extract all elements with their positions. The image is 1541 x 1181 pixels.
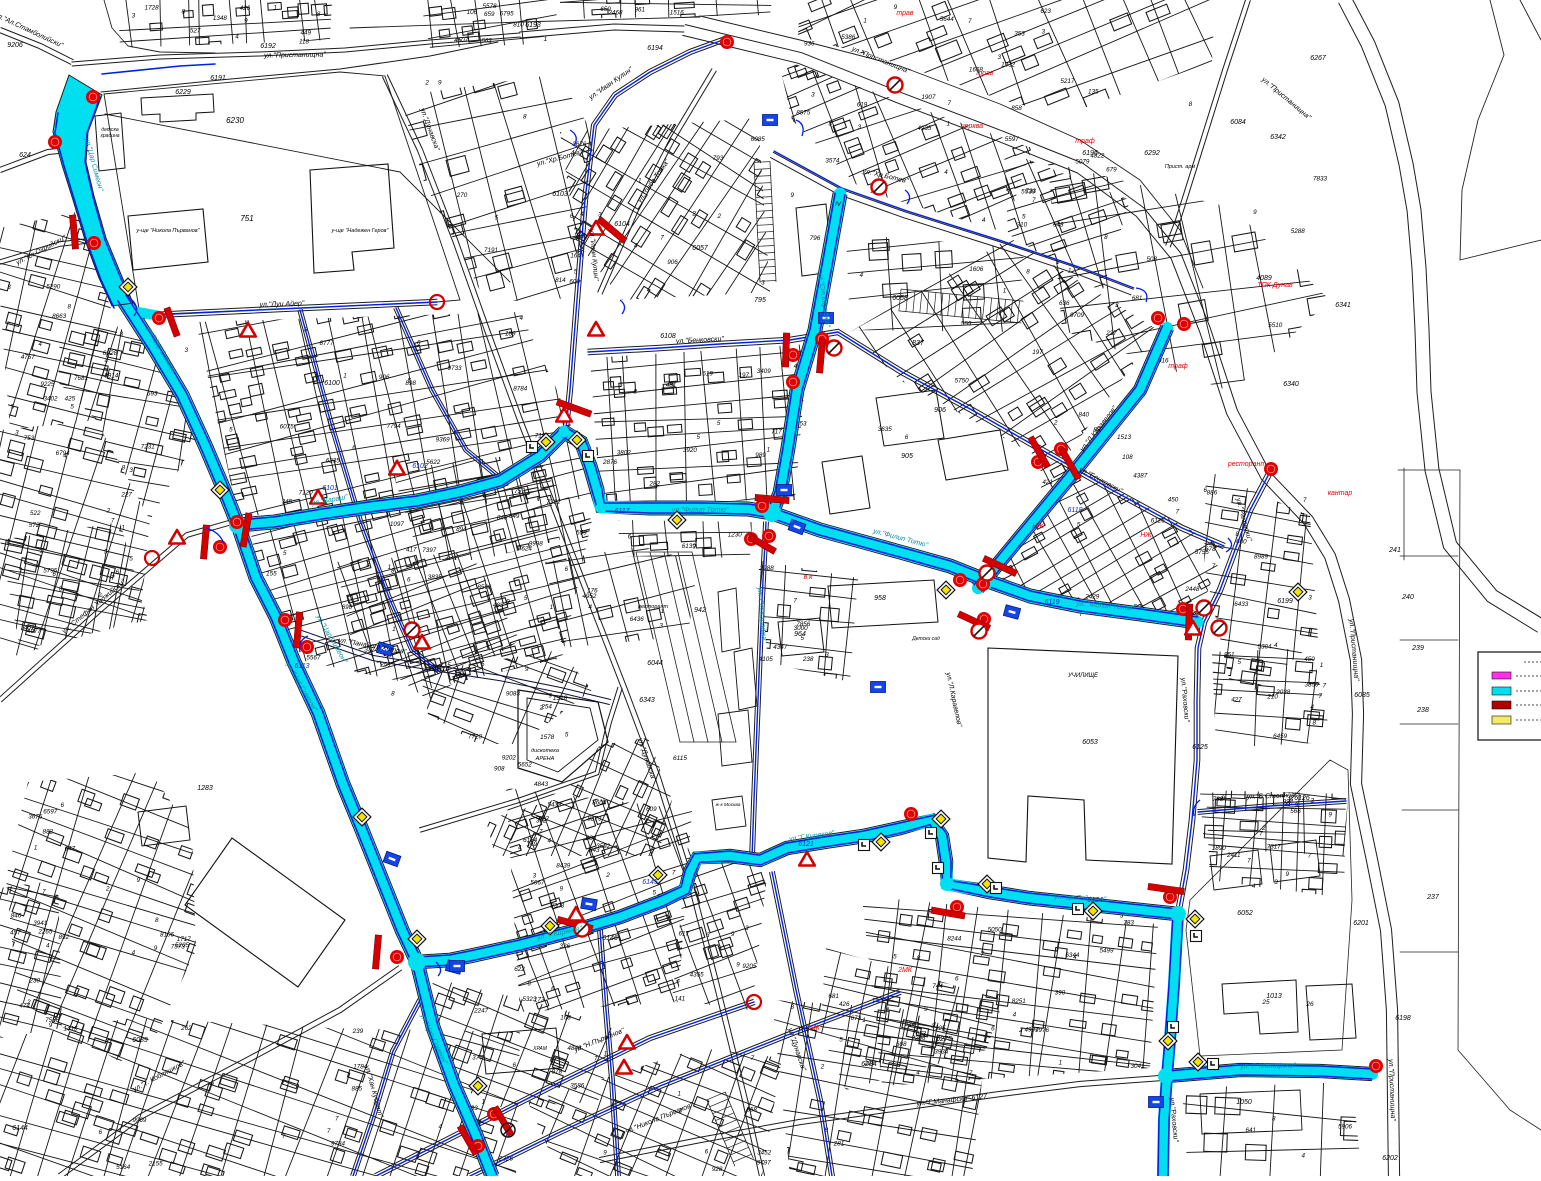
- svg-text:1: 1: [1320, 662, 1324, 669]
- svg-text:6292: 6292: [1144, 150, 1160, 157]
- svg-text:1: 1: [1003, 288, 1007, 295]
- svg-text:2: 2: [820, 1064, 825, 1071]
- svg-text:7: 7: [1323, 683, 1327, 690]
- svg-text:6101: 6101: [322, 485, 338, 492]
- svg-text:647: 647: [65, 845, 76, 852]
- svg-text:9205: 9205: [742, 963, 757, 970]
- svg-text:3: 3: [1041, 29, 1045, 36]
- svg-text:5644: 5644: [940, 16, 955, 23]
- svg-text:6: 6: [407, 577, 411, 584]
- svg-text:353: 353: [1014, 31, 1025, 38]
- svg-text:238: 238: [802, 656, 814, 663]
- svg-text:7: 7: [282, 1133, 286, 1140]
- svg-text:6: 6: [417, 340, 421, 347]
- svg-text:5: 5: [229, 426, 233, 433]
- svg-text:черква: черква: [961, 123, 983, 130]
- svg-text:7624: 7624: [518, 545, 533, 552]
- svg-text:4: 4: [1252, 883, 1256, 890]
- svg-text:6053: 6053: [1082, 739, 1098, 746]
- svg-text:6114: 6114: [434, 666, 449, 673]
- svg-text:6201: 6201: [1353, 920, 1369, 927]
- svg-text:1: 1: [121, 525, 125, 532]
- svg-text:1606: 1606: [969, 266, 984, 273]
- svg-text:6: 6: [527, 980, 531, 987]
- svg-text:189: 189: [505, 330, 516, 337]
- svg-text:УЧИЛИЩЕ: УЧИЛИЩЕ: [1067, 673, 1099, 679]
- svg-text:5667: 5667: [530, 879, 545, 886]
- svg-text:6057: 6057: [692, 245, 709, 252]
- svg-text:6044: 6044: [647, 660, 663, 667]
- svg-text:106: 106: [467, 9, 478, 16]
- svg-text:IV: IV: [835, 202, 842, 208]
- svg-text:6196: 6196: [1082, 150, 1098, 157]
- svg-text:НЖ: НЖ: [1032, 523, 1044, 530]
- svg-text:8: 8: [1272, 1116, 1276, 1123]
- svg-text:7120: 7120: [299, 489, 314, 496]
- svg-text:5578: 5578: [482, 3, 497, 10]
- svg-text:837: 837: [912, 340, 925, 347]
- svg-text:4: 4: [1013, 1011, 1017, 1018]
- svg-text:5: 5: [104, 548, 108, 555]
- svg-text:624: 624: [19, 152, 31, 159]
- svg-text:2МК: 2МК: [805, 1025, 821, 1032]
- svg-text:906: 906: [934, 407, 946, 414]
- svg-text:2876: 2876: [602, 459, 618, 466]
- svg-text:693: 693: [147, 391, 158, 398]
- svg-text:421: 421: [1042, 479, 1053, 486]
- svg-text:5: 5: [70, 403, 74, 410]
- svg-text:958: 958: [874, 595, 886, 602]
- svg-text:6194: 6194: [647, 45, 663, 52]
- svg-text:9784: 9784: [331, 1140, 346, 1147]
- svg-text:3041: 3041: [1130, 1063, 1144, 1070]
- svg-text:9: 9: [560, 886, 564, 893]
- svg-text:2: 2: [106, 508, 111, 515]
- svg-text:7: 7: [660, 234, 664, 241]
- svg-text:7: 7: [1212, 563, 1216, 570]
- svg-text:6: 6: [628, 533, 632, 540]
- svg-text:8: 8: [633, 389, 637, 396]
- svg-text:6: 6: [991, 1026, 995, 1033]
- svg-text:6191: 6191: [210, 75, 226, 82]
- svg-text:ул."Г. Манафски": ул."Г. Манафски": [1239, 1063, 1296, 1071]
- svg-text:8439: 8439: [556, 863, 571, 870]
- svg-text:681: 681: [828, 993, 839, 1000]
- svg-text:3: 3: [811, 92, 815, 99]
- svg-text:9976: 9976: [1035, 1027, 1050, 1034]
- svg-text:6795: 6795: [500, 11, 515, 18]
- svg-text:4: 4: [1302, 1153, 1306, 1160]
- svg-text:617: 617: [679, 931, 690, 938]
- svg-text:25: 25: [1261, 999, 1270, 1006]
- svg-text:2448: 2448: [1184, 586, 1200, 593]
- svg-text:7: 7: [111, 575, 115, 582]
- svg-text:1283: 1283: [197, 785, 213, 792]
- svg-text:3: 3: [997, 54, 1001, 61]
- svg-text:6235: 6235: [326, 458, 341, 465]
- svg-text:7: 7: [327, 1128, 331, 1135]
- svg-text:7720: 7720: [468, 734, 483, 741]
- svg-text:481: 481: [666, 382, 677, 389]
- svg-text:9: 9: [136, 877, 140, 884]
- svg-text:6198: 6198: [1395, 1015, 1411, 1022]
- svg-text:9: 9: [1328, 811, 1332, 818]
- svg-text:1: 1: [343, 372, 347, 379]
- svg-text:9: 9: [525, 666, 529, 673]
- svg-text:744: 744: [932, 983, 943, 990]
- svg-text:дискотека: дискотека: [531, 748, 559, 754]
- svg-text:882: 882: [43, 829, 54, 836]
- svg-text:8106: 8106: [160, 932, 175, 939]
- svg-text:7: 7: [42, 889, 46, 896]
- svg-text:141: 141: [675, 996, 686, 1003]
- svg-text:1: 1: [677, 1090, 681, 1097]
- svg-text:6039: 6039: [132, 1037, 148, 1044]
- svg-text:4: 4: [46, 943, 50, 950]
- svg-text:1513: 1513: [1117, 434, 1132, 441]
- svg-text:681: 681: [1132, 295, 1143, 302]
- svg-text:345: 345: [282, 499, 293, 506]
- svg-text:6124: 6124: [1087, 897, 1103, 904]
- svg-text:788: 788: [1213, 796, 1224, 803]
- svg-text:377: 377: [472, 1055, 483, 1062]
- svg-text:3: 3: [1115, 302, 1119, 309]
- svg-text:Детски сад: Детски сад: [911, 636, 940, 642]
- svg-text:9202: 9202: [502, 755, 517, 762]
- svg-text:6145: 6145: [642, 879, 658, 886]
- svg-text:1: 1: [34, 845, 38, 852]
- svg-text:6344: 6344: [1065, 952, 1080, 959]
- svg-text:3835: 3835: [428, 574, 443, 581]
- svg-text:9206: 9206: [7, 42, 23, 49]
- svg-text:450: 450: [1168, 496, 1179, 503]
- svg-text:426: 426: [839, 1001, 850, 1008]
- svg-text:7573: 7573: [171, 943, 186, 950]
- svg-text:2: 2: [539, 705, 544, 712]
- svg-text:8: 8: [317, 11, 321, 18]
- svg-text:6104: 6104: [614, 221, 630, 228]
- svg-text:5652: 5652: [518, 761, 533, 768]
- svg-text:9: 9: [791, 192, 795, 199]
- svg-text:траф: траф: [1075, 138, 1095, 145]
- svg-text:155: 155: [266, 570, 277, 577]
- svg-text:1: 1: [392, 626, 396, 633]
- svg-text:1: 1: [1059, 1060, 1063, 1067]
- svg-text:6228: 6228: [103, 350, 118, 357]
- svg-text:6146: 6146: [602, 935, 618, 942]
- svg-text:5217: 5217: [1060, 78, 1075, 85]
- svg-text:5: 5: [481, 661, 485, 668]
- svg-text:649: 649: [509, 513, 520, 520]
- svg-text:622: 622: [514, 966, 525, 973]
- svg-text:8: 8: [122, 465, 126, 472]
- svg-text:9: 9: [154, 945, 158, 952]
- svg-text:5539: 5539: [1021, 189, 1036, 196]
- svg-text:5386: 5386: [841, 34, 856, 41]
- svg-text:241: 241: [1388, 547, 1401, 554]
- svg-text:4: 4: [1310, 704, 1314, 711]
- svg-text:118: 118: [299, 38, 310, 45]
- svg-text:9709: 9709: [1070, 312, 1085, 319]
- svg-text:522: 522: [30, 510, 41, 517]
- svg-text:6: 6: [115, 569, 119, 576]
- svg-text:9: 9: [244, 18, 248, 25]
- svg-text:4843: 4843: [534, 781, 549, 788]
- svg-text:7833: 7833: [1313, 176, 1328, 183]
- svg-text:906: 906: [667, 259, 678, 266]
- svg-text:7794: 7794: [387, 423, 402, 430]
- svg-text:559: 559: [576, 529, 587, 536]
- svg-text:6126: 6126: [1294, 795, 1310, 802]
- svg-text:6199: 6199: [1277, 598, 1293, 605]
- svg-text:239: 239: [352, 1028, 364, 1035]
- svg-text:240: 240: [1401, 594, 1414, 601]
- svg-text:1230: 1230: [728, 532, 743, 539]
- svg-text:7: 7: [793, 598, 797, 605]
- svg-text:5: 5: [283, 550, 287, 557]
- svg-text:ул."Луи Айер": ул."Луи Айер": [258, 299, 305, 309]
- svg-text:3: 3: [15, 430, 19, 437]
- svg-text:6058: 6058: [892, 295, 908, 302]
- svg-text:905: 905: [901, 453, 913, 460]
- svg-text:623: 623: [1040, 8, 1051, 15]
- svg-text:684: 684: [586, 835, 597, 842]
- svg-text:5050: 5050: [988, 927, 1003, 934]
- svg-text:1: 1: [39, 548, 43, 555]
- svg-text:8: 8: [1189, 101, 1193, 108]
- svg-text:5: 5: [839, 1036, 843, 1043]
- svg-text:6: 6: [98, 1129, 102, 1136]
- svg-text:5304: 5304: [1257, 644, 1272, 651]
- svg-text:3: 3: [761, 280, 765, 287]
- svg-text:1832: 1832: [1001, 61, 1016, 68]
- svg-text:108: 108: [1122, 454, 1133, 461]
- svg-text:7191: 7191: [484, 247, 498, 254]
- svg-text:717: 717: [771, 429, 782, 436]
- svg-text:4: 4: [235, 34, 239, 41]
- svg-text:6: 6: [513, 1062, 517, 1069]
- svg-text:у-ще "Надежен Геров": у-ще "Надежен Геров": [330, 228, 389, 234]
- svg-text:5: 5: [893, 954, 897, 961]
- svg-text:4387: 4387: [1133, 473, 1148, 480]
- svg-text:796: 796: [810, 235, 821, 242]
- svg-text:1318: 1318: [553, 695, 568, 702]
- svg-text:4977: 4977: [27, 628, 42, 635]
- svg-text:210: 210: [1266, 693, 1278, 700]
- svg-text:5: 5: [11, 404, 15, 411]
- svg-text:4: 4: [132, 950, 136, 957]
- svg-text:8989: 8989: [1254, 553, 1269, 560]
- svg-text:6164: 6164: [523, 837, 538, 844]
- svg-text:2: 2: [1053, 420, 1058, 427]
- svg-text:488: 488: [493, 602, 504, 609]
- svg-text:527: 527: [190, 27, 201, 34]
- svg-text:858: 858: [746, 1106, 757, 1113]
- svg-text:793: 793: [713, 155, 724, 162]
- svg-text:619: 619: [702, 371, 713, 378]
- svg-text:609: 609: [646, 806, 657, 813]
- svg-text:7: 7: [948, 100, 952, 107]
- svg-text:690: 690: [342, 604, 353, 611]
- svg-text:9: 9: [438, 79, 442, 86]
- svg-text:2: 2: [366, 561, 371, 568]
- svg-text:925: 925: [935, 1025, 946, 1032]
- svg-text:4: 4: [916, 1070, 920, 1077]
- svg-text:7: 7: [751, 1055, 755, 1062]
- svg-text:ХРАМ: ХРАМ: [532, 1046, 548, 1052]
- svg-text:7: 7: [1259, 830, 1263, 837]
- svg-text:7231: 7231: [141, 443, 155, 450]
- svg-text:783: 783: [1123, 920, 1134, 927]
- svg-text:2: 2: [105, 886, 110, 893]
- svg-text:622: 622: [539, 816, 550, 823]
- svg-text:6193: 6193: [525, 22, 541, 29]
- svg-text:градина: градина: [100, 133, 119, 139]
- svg-text:961: 961: [634, 7, 645, 14]
- svg-text:197: 197: [1032, 349, 1043, 356]
- svg-text:6229: 6229: [175, 89, 191, 96]
- svg-text:4935: 4935: [917, 125, 932, 132]
- svg-text:5906: 5906: [1338, 1124, 1353, 1131]
- svg-text:26: 26: [1305, 1001, 1314, 1008]
- svg-text:168: 168: [560, 1015, 571, 1022]
- svg-text:989: 989: [755, 452, 766, 459]
- svg-text:1: 1: [388, 564, 392, 571]
- svg-text:6: 6: [1204, 487, 1208, 494]
- svg-text:239: 239: [1411, 645, 1424, 652]
- svg-text:6075: 6075: [280, 423, 295, 430]
- svg-text:659: 659: [484, 11, 495, 18]
- svg-text:6192: 6192: [260, 43, 276, 50]
- svg-text:7: 7: [672, 869, 676, 876]
- svg-text:7556: 7556: [45, 1017, 60, 1024]
- svg-text:7: 7: [981, 951, 985, 958]
- svg-text:3: 3: [1308, 595, 1312, 602]
- svg-text:Прист. арм: Прист. арм: [1165, 164, 1195, 170]
- svg-text:8: 8: [1312, 720, 1316, 727]
- svg-text:7: 7: [1176, 508, 1180, 515]
- svg-text:942: 942: [694, 607, 706, 614]
- svg-text:840: 840: [497, 515, 508, 522]
- svg-text:8: 8: [59, 585, 63, 592]
- svg-text:3941: 3941: [33, 920, 47, 927]
- svg-text:6103: 6103: [552, 191, 568, 198]
- svg-text:6: 6: [905, 434, 909, 441]
- svg-text:6: 6: [955, 976, 959, 983]
- svg-text:9733: 9733: [447, 365, 462, 372]
- svg-text:6085: 6085: [751, 136, 766, 143]
- svg-text:4: 4: [944, 169, 948, 176]
- svg-text:238: 238: [1416, 707, 1429, 714]
- svg-text:5288: 5288: [1291, 228, 1306, 235]
- svg-text:кантар: кантар: [1328, 490, 1353, 497]
- svg-text:6459: 6459: [1273, 733, 1288, 740]
- svg-text:851: 851: [1224, 652, 1235, 659]
- svg-text:2: 2: [691, 211, 696, 218]
- svg-text:6433: 6433: [1234, 601, 1249, 608]
- svg-text:6597: 6597: [43, 808, 58, 815]
- svg-text:3: 3: [745, 925, 749, 932]
- svg-text:6121: 6121: [798, 841, 814, 848]
- svg-text:5: 5: [717, 420, 721, 427]
- svg-text:6100: 6100: [324, 380, 340, 387]
- svg-text:3934: 3934: [934, 1049, 949, 1056]
- svg-text:795: 795: [754, 297, 766, 304]
- svg-text:6115: 6115: [673, 755, 687, 762]
- svg-text:135: 135: [1088, 89, 1099, 96]
- svg-text:7: 7: [693, 544, 697, 551]
- svg-text:3: 3: [129, 467, 133, 474]
- svg-text:5: 5: [565, 731, 569, 738]
- svg-text:1516: 1516: [670, 9, 685, 16]
- svg-text:6275: 6275: [936, 1036, 952, 1043]
- svg-text:1907: 1907: [921, 94, 936, 101]
- svg-text:ж-к Москва: ж-к Москва: [715, 802, 741, 808]
- svg-text:427: 427: [1231, 696, 1242, 703]
- svg-text:1415: 1415: [63, 1026, 78, 1033]
- svg-text:9: 9: [1295, 802, 1299, 809]
- svg-text:5622: 5622: [426, 459, 441, 466]
- svg-text:6113: 6113: [294, 663, 309, 670]
- svg-text:7: 7: [968, 18, 972, 25]
- svg-text:7: 7: [1247, 857, 1251, 864]
- svg-text:4355: 4355: [690, 972, 705, 979]
- svg-text:8: 8: [791, 1004, 795, 1011]
- svg-text:3: 3: [828, 120, 832, 127]
- svg-text:1717: 1717: [177, 936, 192, 943]
- svg-text:3574: 3574: [825, 158, 840, 165]
- svg-text:8: 8: [391, 690, 395, 697]
- svg-text:237: 237: [1426, 894, 1440, 901]
- svg-text:3: 3: [659, 623, 663, 630]
- svg-text:5079: 5079: [1075, 158, 1090, 165]
- svg-text:885: 885: [352, 1086, 363, 1093]
- svg-text:3409: 3409: [757, 368, 772, 375]
- svg-text:6108: 6108: [660, 333, 676, 340]
- svg-text:ТПК Дунав: ТПК Дунав: [1257, 282, 1293, 289]
- svg-text:8914: 8914: [104, 373, 119, 380]
- svg-text:1: 1: [863, 18, 867, 25]
- svg-text:в.к: в.к: [804, 574, 814, 581]
- svg-text:6: 6: [570, 213, 574, 220]
- svg-text:326: 326: [560, 943, 571, 950]
- svg-text:6342: 6342: [1270, 134, 1286, 141]
- svg-text:1050: 1050: [1236, 1099, 1252, 1106]
- svg-text:846: 846: [11, 912, 22, 919]
- svg-text:3: 3: [132, 12, 136, 19]
- svg-text:7: 7: [335, 1116, 339, 1123]
- svg-text:555: 555: [961, 321, 972, 328]
- svg-text:АРЕНА: АРЕНА: [535, 756, 555, 762]
- svg-text:814: 814: [555, 277, 566, 284]
- svg-text:5: 5: [495, 215, 499, 222]
- svg-text:8303: 8303: [550, 902, 565, 909]
- svg-text:6284: 6284: [861, 1061, 877, 1068]
- svg-text:1097: 1097: [390, 521, 405, 528]
- svg-text:6118: 6118: [1067, 507, 1082, 514]
- svg-text:753: 753: [24, 435, 35, 442]
- svg-text:2МК: 2МК: [897, 967, 913, 974]
- svg-text:390: 390: [1055, 990, 1066, 997]
- svg-text:6202: 6202: [1382, 1155, 1398, 1162]
- svg-text:2265: 2265: [37, 928, 53, 935]
- svg-text:5438: 5438: [547, 801, 562, 808]
- svg-text:9369: 9369: [436, 436, 451, 443]
- svg-text:7: 7: [969, 1070, 973, 1077]
- svg-text:2247: 2247: [473, 1007, 489, 1014]
- svg-text:7: 7: [1318, 693, 1322, 700]
- svg-text:9797: 9797: [757, 1160, 772, 1167]
